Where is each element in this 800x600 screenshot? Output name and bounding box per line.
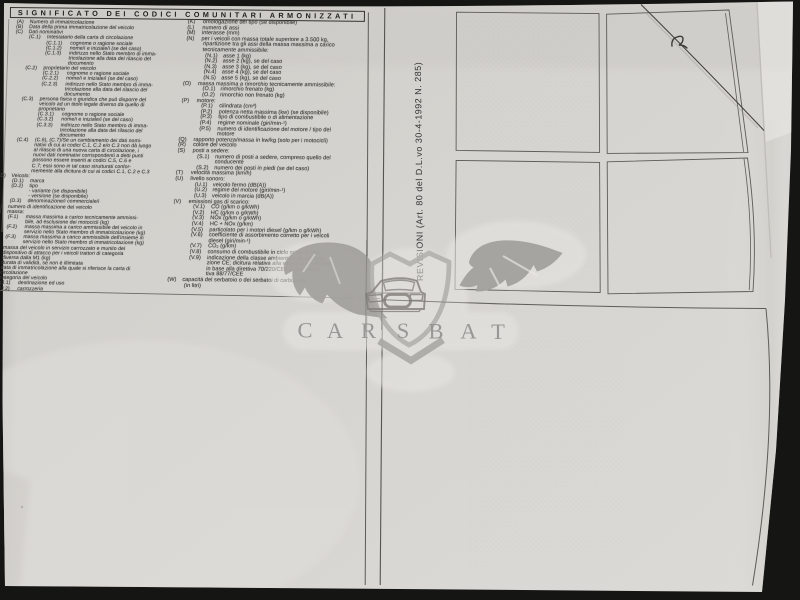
svg-text:S: S [397, 318, 410, 343]
svg-text:B: B [428, 318, 443, 343]
svg-text:R: R [361, 318, 376, 343]
svg-text:A: A [327, 318, 344, 343]
svg-text:A: A [460, 319, 477, 344]
svg-text:T: T [491, 319, 505, 344]
svg-text:C: C [297, 318, 312, 343]
